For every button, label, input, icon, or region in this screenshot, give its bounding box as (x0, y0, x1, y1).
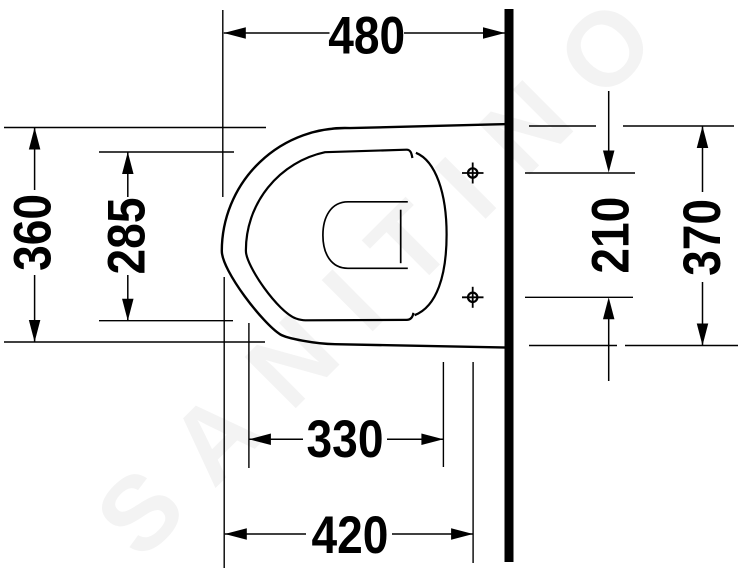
svg-text:420: 420 (311, 505, 388, 565)
svg-text:370: 370 (672, 199, 732, 276)
svg-text:210: 210 (580, 197, 640, 274)
svg-text:285: 285 (97, 198, 157, 275)
svg-text:330: 330 (307, 409, 384, 469)
svg-text:360: 360 (3, 194, 63, 271)
svg-text:480: 480 (328, 5, 405, 65)
